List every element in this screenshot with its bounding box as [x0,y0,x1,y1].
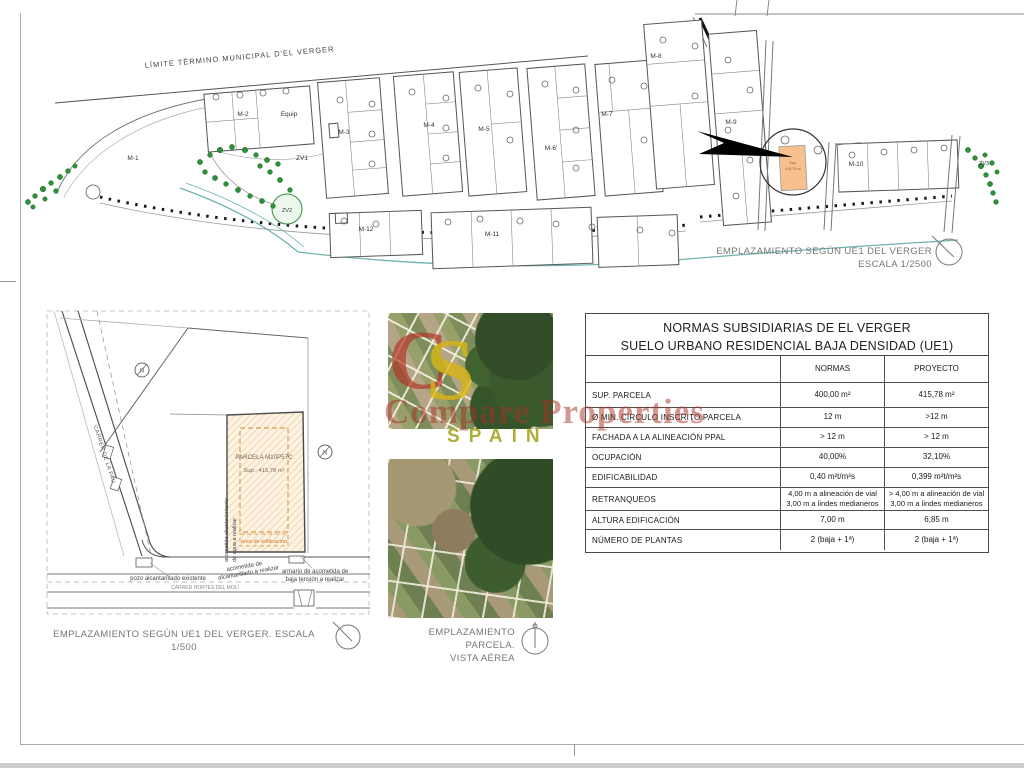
north-symbol-2: N [318,445,332,459]
electric-cabinet-symbol [289,556,304,563]
table-row: OCUPACIÓN 40,00% 32,10% [586,447,988,467]
label-m2: M-2 [237,111,249,118]
water-annotation-line2: de agua a realizar [232,518,238,562]
electric-annotation-line2: baja tensión a realizar [286,577,345,583]
plan-sheet: LÍMITE TÉRMINO MUNICIPAL D'EL VERGER [0,0,1024,768]
siteplan-caption-line2: ESCALA 1/2500 [700,259,932,272]
sewer-existing-annotation: pozo alcantarillado existente [130,576,206,582]
sheet-tick-center [574,744,575,756]
label-zv2: ZV2 [282,208,292,214]
aerial-caption: EMPLAZAMIENTO PARCELA. VISTA AÉREA [388,627,515,665]
label-m9: M-9 [725,119,737,126]
label-m1: M-1 [127,155,139,162]
norms-table: NORMAS SUBSIDIARIAS DE EL VERGER SUELO U… [585,313,989,553]
col-header-proyecto: PROYECTO [884,356,988,382]
north-compass-aerial [517,620,553,656]
label-m10: M-10 [849,161,864,168]
label-m7: M-7 [601,111,613,118]
north-symbol-1: N [135,363,149,377]
table-row: Ø MIN. CÍRCULO INSCRITO PARCELA 12 m >12… [586,407,988,427]
table-row: RETRANQUEOS 4,00 m a alineación de vial … [586,487,988,510]
label-equip: Equip [281,111,298,118]
detailplan-caption: EMPLAZAMIENTO SEGÚN UE1 DEL VERGER. ESCA… [50,629,318,655]
label-zv1: ZV1 [296,155,308,162]
detail-plan: PARCELA M10P57C Sup.: 415,78 m² área de … [40,304,380,652]
north-compass-detailplan [330,620,364,652]
table-row: FACHADA A LA ALINEACIÓN PPAL > 12 m > 12… [586,427,988,447]
label-m4: M-4 [423,122,435,129]
north-compass-siteplan [930,234,966,268]
parcel-m10p57c [227,412,305,552]
sheet-border-bottom [20,744,1024,745]
parcel-area: Sup.: 415,78 m² [243,468,284,474]
col-header-normas: NORMAS [780,356,884,382]
highlighted-parcel-area: 415,78 m² [785,167,802,171]
table-row: ALTURA EDIFICACIÓN 7,00 m 6,85 m [586,510,988,529]
electric-annotation-line1: armario de acometida de [282,569,349,575]
table-title: NORMAS SUBSIDIARIAS DE EL VERGER SUELO U… [586,314,988,356]
sheet-edge-strip [0,763,1024,768]
table-row: SUP. PARCELA 400,00 m² 415,78 m² [586,382,988,407]
street-bottom-label: CARRER HORTES DEL MOLÍ [171,584,239,591]
table-title-line2: SUELO URBANO RESIDENCIAL BAJA DENSIDAD (… [586,337,988,355]
table-header-row: NORMAS PROYECTO [586,356,988,382]
siteplan-caption: EMPLAZAMIENTO SEGÚN UE1 DEL VERGER ESCAL… [700,246,932,272]
aerial-photo-bottom [388,459,553,618]
aerial-photo-top [388,313,553,429]
water-annotation-line1: acometida abastecimiento [224,498,230,562]
municipal-boundary-label: LÍMITE TÉRMINO MUNICIPAL D'EL VERGER [144,44,334,70]
table-row: NÚMERO DE PLANTAS 2 (baja + 1ª) 2 (baja … [586,529,988,550]
table-row: EDIFICABILIDAD 0,40 m²t/m²s 0,399 m²t/m²… [586,467,988,487]
aerial-caption-line2: VISTA AÉREA [388,653,515,666]
label-m5: M-5 [478,126,490,133]
siteplan-caption-line1: EMPLAZAMIENTO SEGÚN UE1 DEL VERGER [700,246,932,259]
label-zv3: ZV3 [979,161,989,167]
label-m8: M-8 [650,53,662,60]
label-m11: M-11 [485,231,500,238]
label-m12: M-12 [359,226,374,233]
building-area-label: área de edificación [241,539,287,545]
label-m6p: M-6' [545,145,557,152]
watermark-country: SPAIN [447,426,549,448]
svg-text:N: N [140,369,144,375]
label-m3: M-3 [338,129,350,136]
highlighted-parcel-sup: Sup. [789,161,796,165]
parcel-title: PARCELA M10P57C [235,454,293,461]
svg-text:N: N [323,451,327,457]
table-title-line1: NORMAS SUBSIDIARIAS DE EL VERGER [586,319,988,337]
aerial-caption-line1: EMPLAZAMIENTO PARCELA. [388,627,515,653]
